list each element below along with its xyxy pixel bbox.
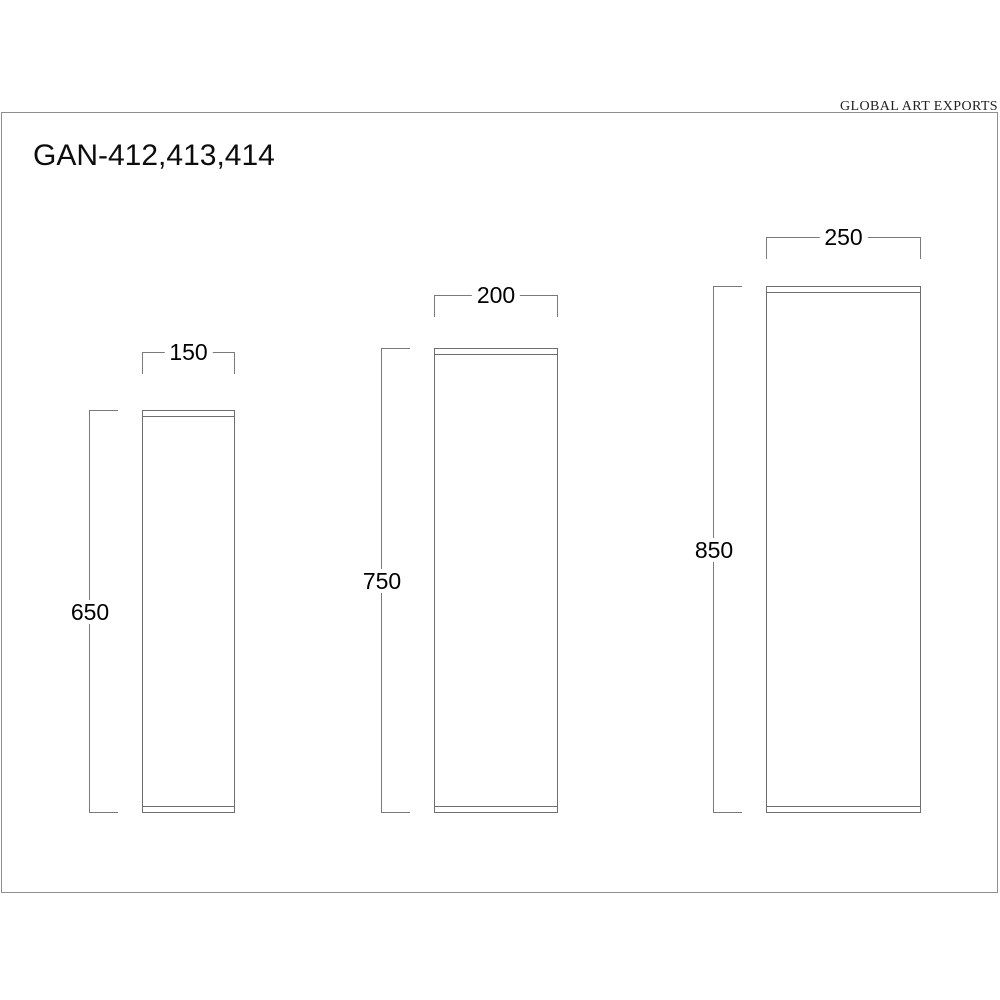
width-dimension-label: 200: [472, 283, 520, 307]
pedestal-outline: [434, 348, 558, 813]
pedestal-bottom-plinth-line: [766, 806, 921, 807]
width-dimension-label: 250: [819, 225, 867, 249]
drawing-sheet: GLOBAL ART EXPORTS GAN-412,413,414 15065…: [0, 0, 1000, 1000]
pedestal-outline: [766, 286, 921, 813]
width-dimension-extension-left: [766, 237, 767, 259]
pedestal-top-cap-line: [766, 292, 921, 293]
pedestal-bottom-plinth-line: [434, 806, 558, 807]
height-dimension-tick-bottom: [713, 812, 742, 813]
height-dimension-tick-top: [89, 410, 118, 411]
width-dimension-label: 150: [164, 340, 212, 364]
page-title: GAN-412,413,414: [33, 139, 275, 173]
width-dimension-extension-right: [234, 352, 235, 374]
height-dimension-label: 850: [690, 537, 738, 561]
height-dimension-label: 650: [66, 599, 114, 623]
height-dimension-tick-bottom: [89, 812, 118, 813]
width-dimension-extension-left: [434, 295, 435, 317]
height-dimension-label: 750: [358, 568, 406, 592]
height-dimension-tick-bottom: [381, 812, 410, 813]
height-dimension-tick-top: [381, 348, 410, 349]
width-dimension-extension-right: [920, 237, 921, 259]
brand-text: GLOBAL ART EXPORTS: [840, 99, 998, 115]
width-dimension-extension-right: [557, 295, 558, 317]
pedestal-top-cap-line: [142, 416, 235, 417]
height-dimension-tick-top: [713, 286, 742, 287]
pedestal-top-cap-line: [434, 354, 558, 355]
pedestal-outline: [142, 410, 235, 813]
width-dimension-extension-left: [142, 352, 143, 374]
pedestal-bottom-plinth-line: [142, 806, 235, 807]
